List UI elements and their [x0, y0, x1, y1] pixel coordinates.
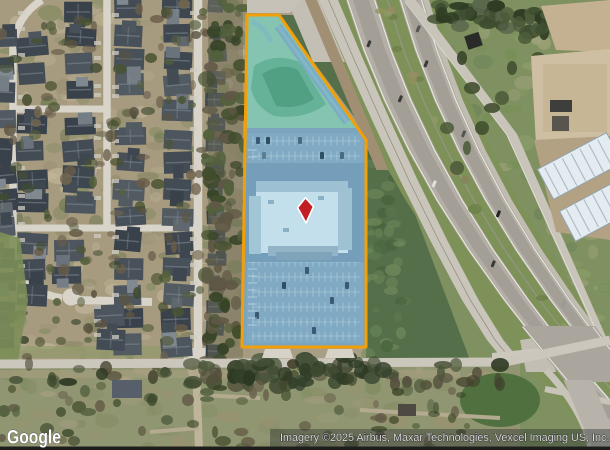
svg-text:Imagery ©2025 Airbus, Maxar Te: Imagery ©2025 Airbus, Maxar Technologies…: [280, 432, 609, 444]
svg-text:Google: Google: [7, 428, 61, 449]
